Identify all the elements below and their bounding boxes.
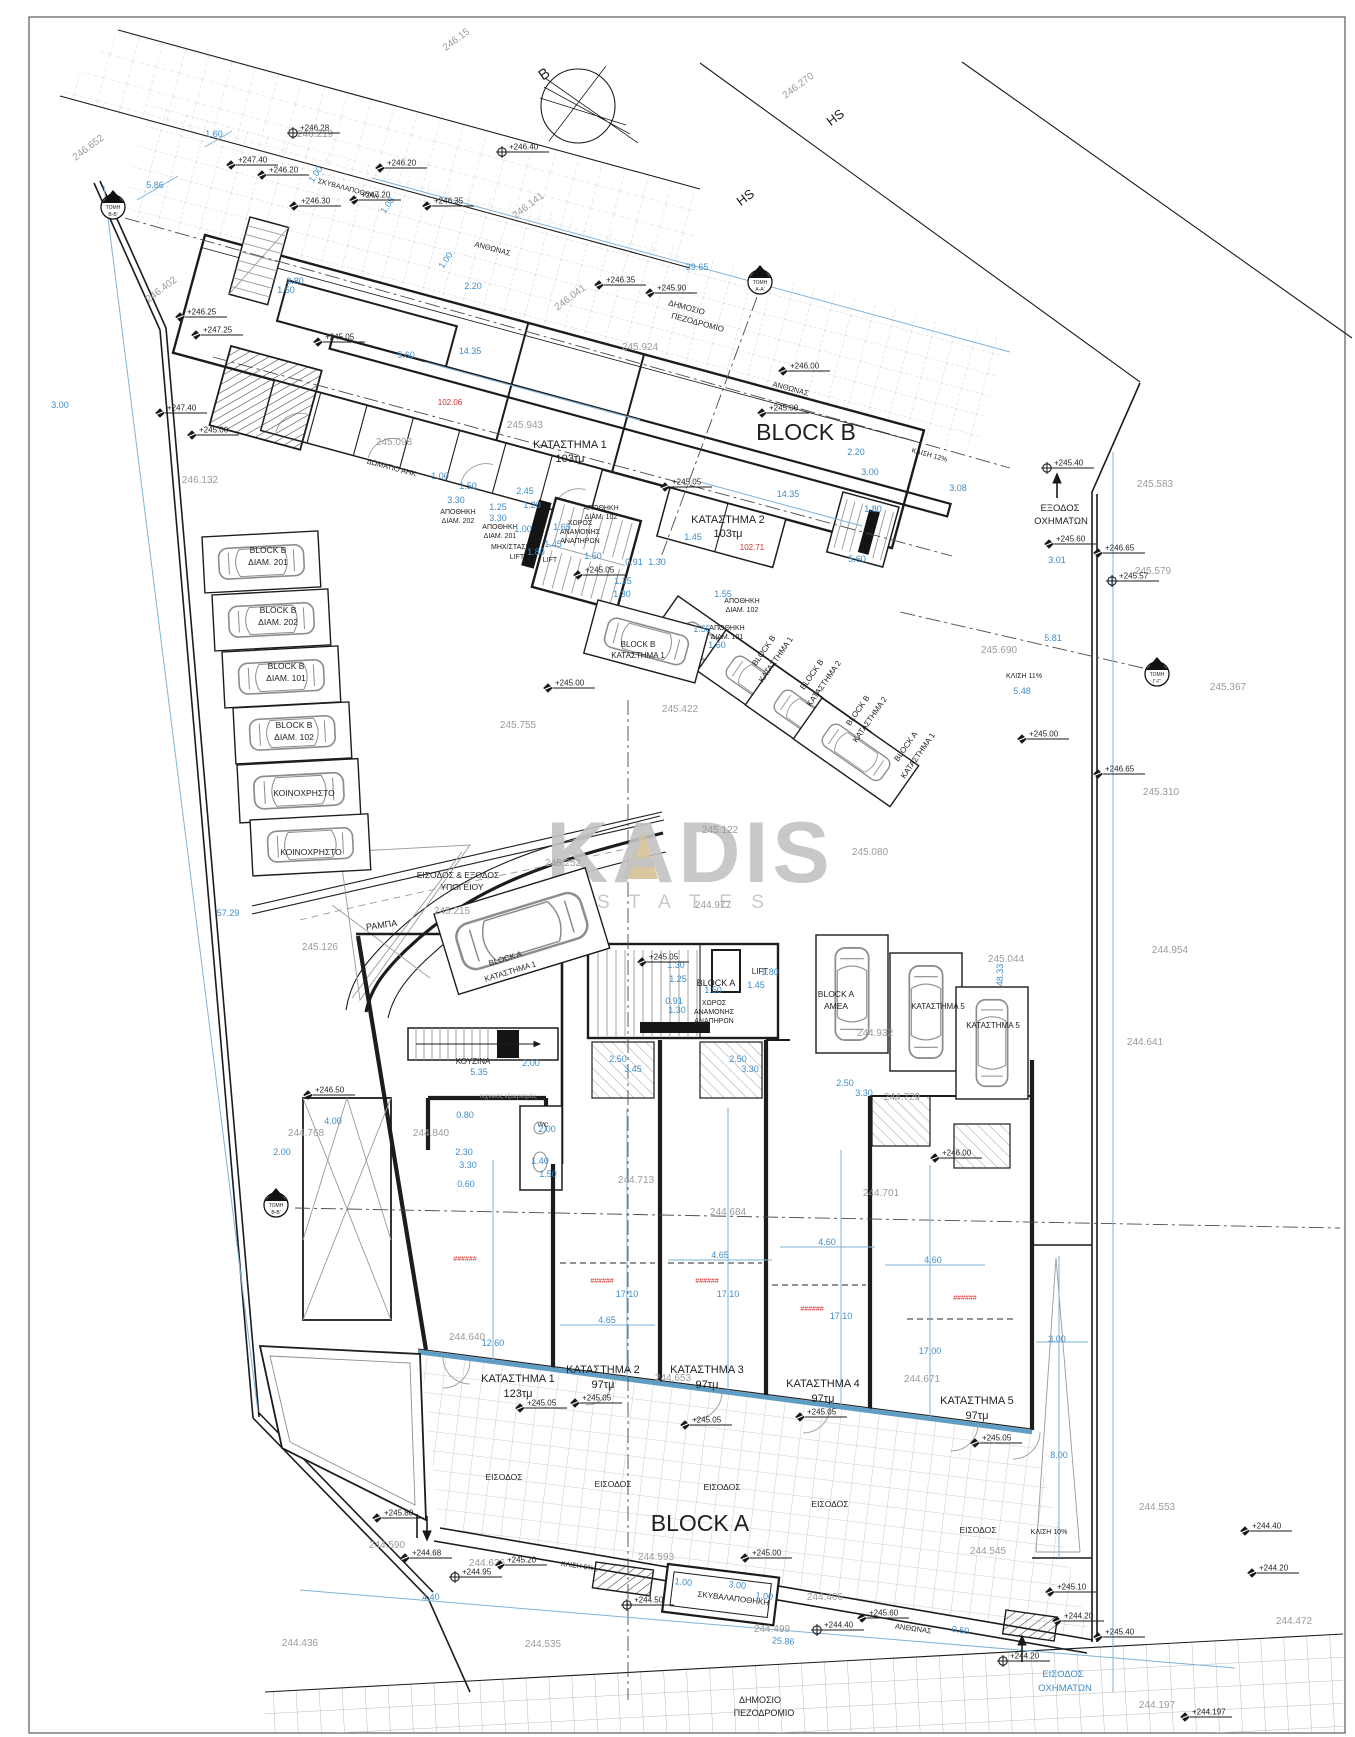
elevation-value: +245.05 [585,566,615,575]
section-label: Α-Α' [755,287,764,293]
gray-label: 244.701 [863,1188,900,1199]
gray-label: 245.367 [1210,682,1247,693]
blue-label: 3.45 [624,1064,642,1074]
black-label: ΔΙΑΜ. 102 [726,607,759,614]
blue-label: 3.30 [447,495,465,505]
red-label: 102.06 [438,398,463,407]
blue-label: 1.30 [613,589,631,599]
blue-label: 3.30 [489,513,507,523]
black-label: ΚΑΤΑΣΤΗΜΑ 2 [566,1364,640,1376]
blue-label: 3.01 [1048,555,1066,565]
gray-label: 244.954 [1152,945,1189,956]
blue-label: 0.91 [625,557,643,567]
elevation-marker: +245.40 [1041,459,1094,475]
gray-label: 245.943 [507,420,544,431]
black-label: ΚΑΤΑΣΤΗΜΑ 5 [966,1021,1020,1030]
black-label: ΑΝΑΠΗΡΩΝ [694,1018,733,1025]
blue-label: 0.80 [456,1110,474,1120]
black-label: ΚΑΤΑΣΤΗΜΑ 1 [611,651,665,660]
elevation-value: +244.40 [824,1621,854,1630]
blue-label: 1.00 [755,1590,773,1602]
gray-label: 244.977 [695,900,732,911]
blue-label: 17.10 [616,1289,639,1299]
black-label: ΔΙΑΜ. 202 [442,518,475,525]
gray-label: 245.755 [500,720,537,731]
blue-label: 48.33 [995,964,1005,987]
gray-label: 244.671 [904,1374,941,1385]
black-label: LIFT [543,557,558,564]
elevation-value: +244.95 [462,1568,492,1577]
gray-label: 244.472 [1276,1616,1313,1627]
section-marker: ΤΟΜΗΒ-Β' [264,1188,288,1217]
blue-label: 1.50 [277,285,295,295]
elevation-value: +244.20 [1064,1612,1094,1621]
blue-label: 2.00 [522,1058,540,1068]
section-title: ΤΟΜΗ [106,205,121,211]
hatch-box [592,1562,653,1596]
elevation-marker: +247.40 [155,404,207,418]
skylight-strip-3 [872,1096,930,1146]
blue-label: 3.00 [51,400,69,410]
blue-label: 17.10 [717,1289,740,1299]
elevation-value: +245.90 [657,284,687,293]
blue-label: 0.60 [951,1624,970,1636]
black-label: ΔΙΑΜ. 201 [248,557,288,567]
blue-label: 17.00 [919,1346,942,1356]
blue-label: 1.30 [667,960,685,970]
black-label: ΥΠΟΓΕΙΟΥ [440,882,483,892]
blue-label: 2.00 [273,1147,291,1157]
section-label: Β-Β' [271,1210,280,1216]
gray-label: 245.252 [545,858,582,869]
elevation-value: +245.05 [807,1408,837,1417]
blue-label: 1.25 [614,576,632,586]
black-label: ΟΧΗΜΑΤΩΝ [1034,516,1088,527]
elevation-value: +246.20 [269,166,299,175]
parking-stall [956,987,1028,1099]
blue-label: 1.45 [747,980,765,990]
black-label: BLOCK A [818,989,855,999]
north-arrow [540,66,638,143]
black-label: ΑΠΟΘΗΚΗ [440,509,475,516]
blue-label: 3.30 [855,1088,873,1098]
gray-label: 244.641 [1127,1037,1164,1048]
car-icon [267,827,354,862]
black-label: ΔΙΑΜ. 202 [258,617,298,627]
elevation-value: +246.25 [187,308,217,317]
black-label: BLOCK B [756,419,856,445]
planter-hatch-1 [592,1562,653,1596]
blue-label: 1.50 [539,1169,557,1179]
section-marker: ΤΟΜΗΓ-Γ' [1145,657,1169,686]
elevation-value: +244.197 [1192,1708,1226,1717]
neighbour-trapezoid [260,1346,426,1520]
elevation-value: +244.20 [1259,1564,1289,1573]
elevation-value: +245.40 [1105,1628,1135,1637]
elevation-value: +244.20 [1010,1652,1040,1661]
blue-label: 2.50 [836,1078,854,1088]
black-label: ΚΑΤΑΣΤΗΜΑ 5 [940,1395,1014,1407]
blue-label: 2.30 [455,1147,473,1157]
elevation-value: +247.25 [203,326,233,335]
elevation-value: +246.35 [606,276,636,285]
section-label: Γ-Γ' [1153,679,1161,685]
elevation-value: +246.40 [509,143,539,152]
gray-label: 246.270 [781,70,817,101]
black-label: 103τμ [713,528,742,540]
elevation-marker: +244.40 [1240,1522,1292,1536]
black-label: 97τμ [592,1379,615,1391]
red-label: ###### [695,1278,718,1285]
blue-label: 1.25 [669,974,687,984]
elevation-value: +245.40 [1054,459,1084,468]
gray-label: 244.590 [369,1540,406,1551]
black-label: BLOCK B [276,720,313,730]
blue-label: 4.65 [598,1315,616,1325]
blue-label: 5.60 [848,554,866,564]
elevation-value: +245.05 [649,953,679,962]
car-icon [976,1000,1007,1086]
black-label: ΚΑΤΑΣΤΗΜΑ 1 [481,1373,555,1385]
elevation-value: +245.05 [527,1399,557,1408]
gray-label: 245.583 [1137,479,1174,490]
black-label: ΚΛΙΣΗ 10% [1031,1529,1068,1536]
black-label: ΑΠΟΘΗΚΗ [583,505,618,512]
section-title: ΤΟΜΗ [1150,672,1165,678]
red-label: ###### [590,1278,613,1285]
site-plan-drawing: KADIS E S T A T E S ΚΑΤΑΣΤΗΜΑ 1103τμΚΑΤΑ… [0,0,1355,1737]
elevation-marker: +245.40 [1093,1628,1145,1642]
gray-label: 244.406 [807,1592,844,1603]
gray-label: 245.122 [702,825,739,836]
elevation-value: +245.60 [869,1609,899,1618]
gray-label: 245.080 [852,847,889,858]
blue-label: 1.45 [544,539,562,549]
blue-label: 2.50 [609,1054,627,1064]
gray-label: 244.197 [1139,1700,1176,1711]
black-label: BLOCK B [268,661,305,671]
elevation-value: +245.80 [384,1509,414,1518]
black-label: ΕΙΣΟΔΟΣ [703,1482,740,1492]
blue-label: 3.00 [728,1579,746,1591]
elevation-value: +246.50 [315,1086,345,1095]
blue-label: 2.45 [516,486,534,496]
blue-label: 17.10 [830,1311,853,1321]
elevation-value: +247.20 [361,191,391,200]
elevation-value: +246.00 [942,1149,972,1158]
black-label: ΕΙΣΟΔΟΣ [811,1499,848,1509]
blue-label: 1.20 [523,500,541,510]
black-label: ΚΟΙΝΟΧΡΗΣΤΟ [273,788,335,798]
blue-label: 3.00 [1048,1334,1066,1344]
blue-label: 1.55 [714,589,732,599]
blue-label: 1.30 [648,557,666,567]
elevation-value: +244.68 [412,1549,442,1558]
blue-label: ΕΙΣΟΔΟΣ [1042,1669,1084,1680]
blue-label: 14.35 [459,346,482,356]
blue-label: 3.00 [861,467,879,477]
black-label: ΔΙΑΜ. 102 [274,732,314,742]
parking-stall [250,814,371,876]
elevation-value: +246.28 [300,124,330,133]
car-top-view [909,966,942,1058]
blue-label: 5.81 [1044,633,1062,643]
black-label: ΚΛΙΣΗ 6% [561,1561,594,1572]
black-label: BLOCK B [621,640,656,649]
blue-label: 2.00 [538,1124,556,1134]
gray-label: 244.436 [282,1638,319,1649]
elevation-value: +247.40 [238,156,268,165]
blue-label: 1.80 [761,967,779,977]
elevation-value: +245.00 [555,679,585,688]
elevation-value: +245.10 [1057,1583,1087,1592]
section-label: Β-Β' [108,212,117,218]
gray-label: 244.545 [970,1546,1007,1557]
gray-label: 245.924 [622,342,659,353]
gray-label: τεχνικός εξαερισμός [479,1092,536,1100]
gray-label: 245.690 [981,645,1018,656]
black-label: 97τμ [966,1410,989,1422]
red-label: ###### [800,1306,823,1313]
black-label: ΧΩΡΟΣ [702,1000,727,1007]
gray-label: 245.126 [302,942,339,953]
red-label: 102.71 [740,543,765,552]
blue-label: 2.20 [847,447,865,457]
gray-label: 246.132 [182,475,219,486]
blue-label: 1.50 [704,985,722,995]
gray-label: 245.310 [1143,787,1180,798]
elevation-value: +245.57 [1119,572,1149,581]
black-label: HS [824,106,848,129]
neighbour-structures [260,1098,427,1540]
blue-label: 5.60 [397,350,415,360]
black-label: ΕΙΣΟΔΟΣ [959,1525,996,1535]
black-label: 97τμ [696,1379,719,1391]
black-label: ΔΗΜΟΣΙΟ [739,1695,781,1705]
elevation-value: +244.50 [634,1596,664,1605]
gray-label: 244.729 [884,1092,921,1103]
blue-label: 4.00 [324,1116,342,1126]
section-title: ΤΟΜΗ [753,280,768,286]
elevation-marker: +246.65 [1093,544,1145,558]
benchmark-cross [1041,462,1053,474]
gray-label: 244.535 [525,1639,562,1650]
skylight-strip-4 [954,1124,1010,1168]
blue-label: 1.25 [489,502,507,512]
skylight-strip-1 [592,1042,654,1098]
black-label: ΔΙΑΜ. 101 [266,673,306,683]
elevation-value: +246.35 [434,197,464,206]
gray-label: 244.553 [1139,1502,1176,1513]
blue-label: 14.35 [777,489,800,499]
blue-label: 8.00 [1050,1450,1068,1460]
blue-label: 1.80 [527,547,545,557]
black-label: BLOCK B [250,545,287,555]
blue-label: 2.20 [464,281,482,291]
blue-label: 5.48 [1013,686,1031,696]
black-label: ΑΝΑΜΟΝΗΣ [694,1009,735,1016]
elevation-value: +245.00 [769,404,799,413]
blue-label: 4.40 [422,1592,440,1603]
gray-label: 244.653 [655,1373,692,1384]
gray-label: 245.098 [376,437,413,448]
gray-label: 244.840 [413,1128,450,1139]
site-plan-sheet: KADIS E S T A T E S ΚΑΤΑΣΤΗΜΑ 1103τμΚΑΤΑ… [0,0,1355,1737]
elevation-value: +245.00 [752,1549,782,1558]
gray-label: 246.652 [71,132,107,163]
black-label: ΔΙΑΜ. 201 [484,533,517,540]
benchmark-cross [1106,575,1118,587]
black-label: ΑΠΟΘΗΚΗ [709,625,744,632]
black-label: ΑΝΘΩΝΑΣ [894,1621,932,1635]
gray-label: 244.713 [618,1175,655,1186]
blue-label: 4.60 [924,1255,942,1265]
blue-label: 1.60 [708,640,726,650]
black-label: ΚΑΤΑΣΤΗΜΑ 5 [911,1002,965,1011]
blue-label: 25.86 [772,1635,795,1647]
black-label: BLOCK B [260,605,297,615]
red-label: ###### [953,1295,976,1302]
elevation-value: +245.20 [507,1556,537,1565]
elevation-value: +245.60 [1056,535,1086,544]
elevation-value: +245.05 [582,1394,612,1403]
gray-label: 244.640 [449,1332,486,1343]
elevation-marker: +244.40 [811,1621,864,1637]
black-label: ΡΑΜΠΑ [365,918,397,932]
elevation-marker: +244.68 [400,1549,452,1563]
elevation-value: +246.20 [387,159,417,168]
elevation-marker: +246.65 [1093,765,1145,779]
gray-label: 244.593 [638,1552,675,1563]
blue-label: ΟΧΗΜΑΤΩΝ [1038,1683,1092,1694]
car-top-view [267,827,354,862]
black-label: ΚΑΤΑΣΤΗΜΑ 2 [691,514,765,526]
black-label: ΑΝΑΠΗΡΩΝ [560,538,599,545]
gray-label: 244.684 [710,1207,747,1218]
elevation-value: +245.05 [325,333,355,342]
black-label: ΚΟΙΝΟΧΡΗΣΤΟ [280,847,342,857]
red-label: ###### [453,1256,476,1263]
section-title: ΤΟΜΗ [269,1203,284,1209]
black-label: LIFT [510,554,525,561]
blue-label: 3.30 [459,1160,477,1170]
elevation-value: +245.05 [982,1434,1012,1443]
blue-label: 1.00 [514,524,532,534]
black-label: ΧΩΡΟΣ [568,520,593,527]
gray-label: 245.215 [434,906,471,917]
blue-label: 1.40 [531,1156,549,1166]
elevation-value: +245.05 [692,1416,722,1425]
gray-label: 244.768 [288,1128,325,1139]
blue-label: 57.29 [217,908,240,918]
black-label: 97τμ [812,1393,835,1405]
blue-label: 3.30 [741,1064,759,1074]
blue-label: 1.00 [431,471,449,481]
block-a-left-wall [358,936,426,1350]
elevation-marker: +245.00 [1017,730,1069,744]
section-wedge-icon [1146,657,1168,670]
black-label: ΕΞΟΔΟΣ [1040,503,1079,514]
black-label: ΕΙΣΟΔΟΣ & ΕΞΟΔΟΣ [417,870,499,880]
blue-label: 1.80 [864,504,882,514]
elevation-marker: +244.95 [449,1568,502,1584]
elevation-value: +247.40 [167,404,197,413]
gray-label: 244.499 [754,1624,791,1635]
parking-stall [890,953,962,1071]
blue-label: 1.60 [205,129,223,139]
blue-label: 1.30 [668,1005,686,1015]
black-label: ΕΙΣΟΔΟΣ [594,1479,631,1489]
elevation-value: +244.40 [1252,1522,1282,1531]
elevation-value: +245.00 [199,426,229,435]
blue-label: 1.50 [459,481,477,491]
blue-label: 2.50 [729,1054,747,1064]
blue-label: 5.86 [146,180,164,190]
benchmark-cross [811,1624,823,1636]
blue-label: 0.60 [457,1179,475,1189]
elevation-value: +245.05 [672,478,702,487]
black-label: ΠΕΖΟΔΡΟΜΙΟ [734,1708,795,1718]
black-label: ΚΑΤΑΣΤΗΜΑ 4 [786,1378,860,1390]
elevation-marker: +245.60 [1044,535,1096,549]
elevation-value: +246.65 [1105,765,1135,774]
black-label: AMEA [824,1001,848,1011]
blue-label: 3.08 [949,483,967,493]
black-label: 103τμ [555,453,584,465]
black-label: ΕΙΣΟΔΟΣ [485,1472,522,1482]
car-top-view [976,1000,1007,1086]
black-label: ΚΟΥΖΙΝΑ [456,1057,491,1066]
elevation-marker: +244.20 [1247,1564,1299,1578]
elevation-value: +245.00 [1029,730,1059,739]
gray-label: 245.422 [662,704,699,715]
elevation-marker: +245.00 [543,679,595,693]
black-label: ΚΑΤΑΣΤΗΜΑ 1 [533,439,607,451]
benchmark-cross [449,1571,461,1583]
blue-label: 5.35 [470,1067,488,1077]
black-label: ΑΠΟΘΗΚΗ [724,598,759,605]
car-icon [909,966,942,1058]
blue-label: 39.65 [686,262,709,272]
section-wedge-icon [265,1188,287,1201]
blue-label: 1.00 [674,1576,692,1588]
benchmark-cross [621,1599,633,1611]
gray-label: 244.932 [857,1028,894,1039]
elevation-value: +246.00 [790,362,820,371]
blue-label: 1.55 [693,624,711,634]
blue-label: 12.60 [482,1338,505,1348]
black-label: HS [734,186,758,209]
black-label: BLOCK A [651,1510,750,1536]
black-label: ΑΠΟΘΗΚΗ [482,524,517,531]
blue-label: 1.65 [553,522,571,532]
blue-label: 1.45 [684,532,702,542]
blue-label: 4.60 [818,1237,836,1247]
elevation-value: +246.65 [1105,544,1135,553]
black-label: ΚΛΙΣΗ 11% [1006,673,1042,680]
gray-label: 246.15 [441,26,472,53]
gray-label: 245.044 [988,954,1025,965]
blue-label: 1.50 [584,551,602,561]
elevation-value: +246.30 [301,197,331,206]
blue-label: 4.65 [711,1250,729,1260]
